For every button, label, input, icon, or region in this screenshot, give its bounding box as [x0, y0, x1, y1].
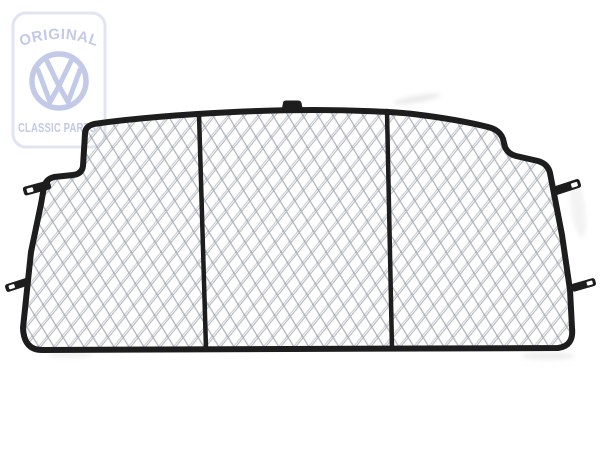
watermark-original-text: ORIGINAL — [17, 26, 101, 50]
product-photo: ORIGINAL CLASSIC PARTS — [0, 0, 600, 458]
partition-net-image: ORIGINAL CLASSIC PARTS — [0, 0, 600, 458]
vw-roundel-logo-icon — [32, 54, 86, 108]
net-mesh — [23, 110, 572, 350]
right-mounting-tab-lower — [570, 278, 596, 293]
